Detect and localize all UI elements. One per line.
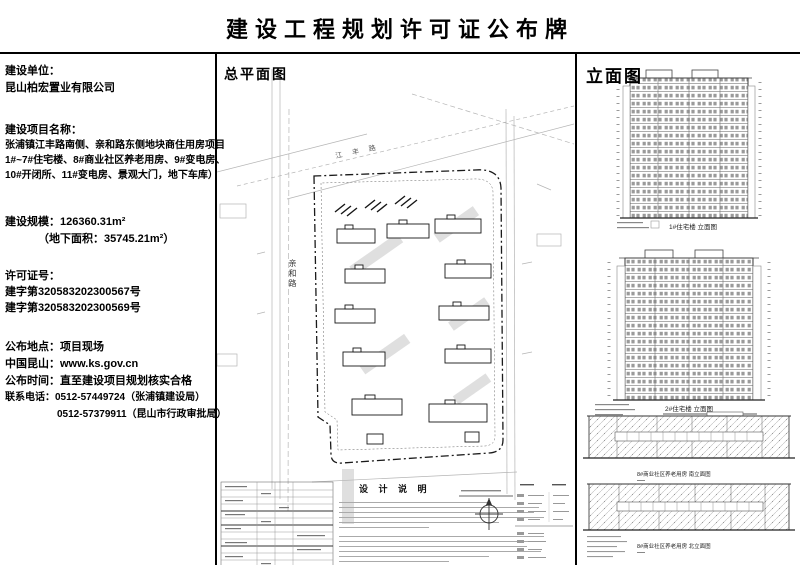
permit-number: 建字第320583202300569号 xyxy=(5,303,141,314)
tower-1-elevation xyxy=(618,70,760,218)
phone-1: 0512-57449724（张浦镇建设局） xyxy=(55,392,205,403)
elevation-drawings: 1#住宅楼 立面图 xyxy=(577,54,800,565)
elevation-title: 立面图 xyxy=(586,62,643,87)
scale-value: 126360.31m² xyxy=(60,216,125,228)
website-value: www.ks.gov.cn xyxy=(60,358,138,370)
site-plan-drawing: 设 计 说 明 xyxy=(217,54,575,565)
tower-1-caption-block: 1#住宅楼 立面图 xyxy=(617,221,717,231)
site-plan-title: 总平面图 xyxy=(224,64,288,84)
building-footprints xyxy=(335,196,491,444)
phone-label: 联系电话： xyxy=(5,392,55,403)
info-panel: 建设单位： 昆山柏宏置业有限公司 建设项目名称： 张浦镇江丰路南侧、亲和路东侧地… xyxy=(0,54,215,565)
plan-legend xyxy=(515,484,573,559)
unit-label: 建设单位： xyxy=(5,66,60,77)
project-line: 张浦镇江丰路南侧、亲和路东侧地块商住用房项目 xyxy=(5,141,225,151)
unit-value: 昆山柏宏置业有限公司 xyxy=(5,83,115,94)
notes-title: 设 计 说 明 xyxy=(359,483,431,494)
duration-row: 公布时间：直至建设项目规划核实合格 xyxy=(5,376,192,387)
indicator-table xyxy=(221,482,333,565)
wide-building-1-elevation: 8#商业社区养老用房 南立面图 xyxy=(583,412,795,481)
location-value: 项目现场 xyxy=(60,341,104,353)
context-roads xyxy=(217,69,574,512)
duration-label: 公布时间： xyxy=(5,375,60,387)
phone-row-1: 联系电话：0512-57449724（张浦镇建设局） xyxy=(5,393,205,403)
tower-2-elevation xyxy=(609,250,769,400)
website-row: 中国昆山：www.ks.gov.cn xyxy=(5,359,138,370)
phone-2: 0512-57379911（昆山市行政审批局） xyxy=(57,410,227,420)
road-label-left: 亲和路 xyxy=(287,259,298,289)
tower-1-caption: 1#住宅楼 立面图 xyxy=(669,222,717,231)
site-plan-panel: 设 计 说 明 xyxy=(215,54,575,565)
wide-building-1-caption: 8#商业社区养老用房 南立面图 xyxy=(637,470,711,478)
scale-sub: （地下面积：35745.21m²） xyxy=(38,234,174,245)
project-line: 1#~7#住宅楼、8#商业社区养老用房、9#变电房、 xyxy=(5,156,225,166)
scale-label: 建设规模： xyxy=(5,216,60,228)
permit-label: 许可证号： xyxy=(5,271,60,282)
location-row: 公布地点：项目现场 xyxy=(5,342,104,353)
project-label: 建设项目名称： xyxy=(5,125,82,136)
permit-notice-board: 建设工程规划许可证公布牌 建设单位： 昆山柏宏置业有限公司 建设项目名称： 张浦… xyxy=(0,0,800,565)
wide-building-2-caption: 8#商业社区养老用房 北立面图 xyxy=(637,542,711,550)
scale-row: 建设规模：126360.31m² xyxy=(5,217,125,228)
location-label: 公布地点： xyxy=(5,341,60,353)
notes-block: 设 计 说 明 xyxy=(339,483,544,562)
permit-number: 建字第320583202300567号 xyxy=(5,287,141,298)
main-table: 建设单位： 昆山柏宏置业有限公司 建设项目名称： 张浦镇江丰路南侧、亲和路东侧地… xyxy=(0,52,800,565)
wide-building-2-elevation: 8#商业社区养老用房 北立面图 xyxy=(583,484,795,557)
elevation-panel: 1#住宅楼 立面图 xyxy=(575,54,800,565)
page-title: 建设工程规划许可证公布牌 xyxy=(0,12,800,44)
tower-2-caption: 2#住宅楼 立面图 xyxy=(665,404,713,413)
duration-value: 直至建设项目规划核实合格 xyxy=(60,375,192,387)
website-label: 中国昆山： xyxy=(5,358,60,370)
project-line: 10#开闭所、11#变电房、景观大门，地下车库） xyxy=(5,171,218,181)
